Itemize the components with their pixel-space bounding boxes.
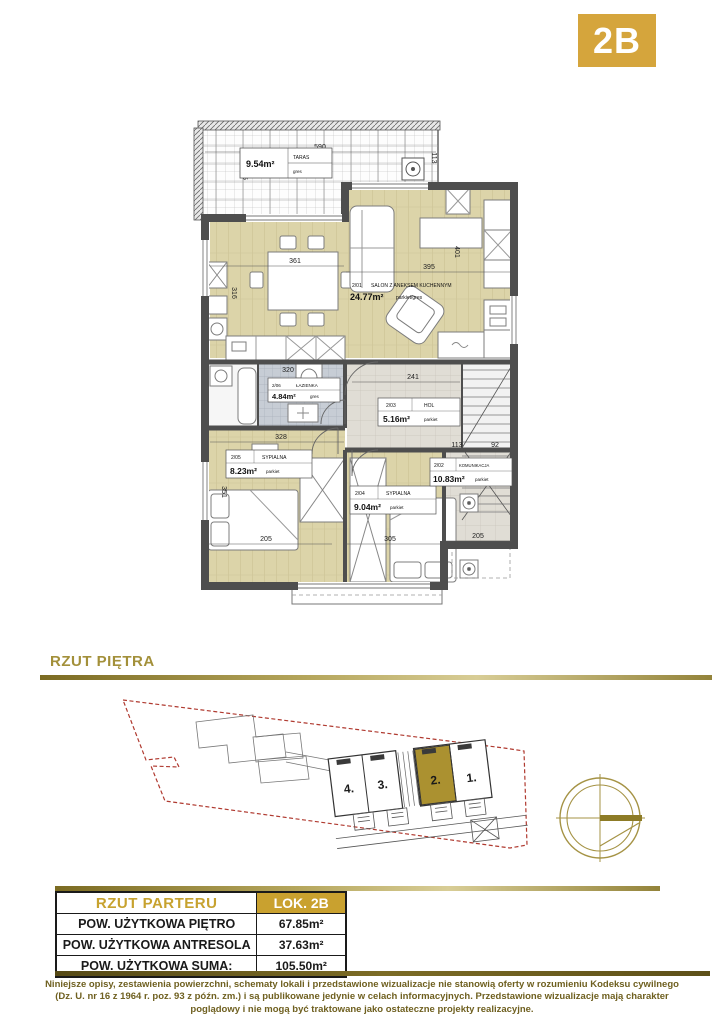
unit-label-1: 1. xyxy=(466,770,478,785)
gold-divider xyxy=(40,675,712,680)
dim-salon-depth: 401 xyxy=(453,246,460,258)
svg-text:2/06: 2/06 xyxy=(272,383,281,388)
svg-text:5.16m²: 5.16m² xyxy=(383,414,410,424)
svg-text:SALON Z ANEKSEM KUCHENNYM: SALON Z ANEKSEM KUCHENNYM xyxy=(371,283,452,289)
dim-komunikacja-w2: 92 xyxy=(491,442,499,449)
table-header-row: RZUT PARTERU LOK. 2B xyxy=(56,892,346,914)
dim-bedroom5-depth: 351 xyxy=(220,486,227,498)
room-label-lazienka: 2/06 ŁAZIENKA 4.84m² gres xyxy=(268,378,340,402)
table-header-title: RZUT PARTERU xyxy=(56,892,257,914)
roof-hatch-top xyxy=(198,121,440,130)
floor-plan: 590 113 205 361 316 395 401 320 241 328 … xyxy=(186,114,530,646)
svg-text:parkiet: parkiet xyxy=(424,417,438,422)
table-row: POW. UŻYTKOWA ANTRESOLA 37.63m² xyxy=(56,935,346,956)
svg-text:gres: gres xyxy=(310,394,320,399)
dim-bedroom5-width: 328 xyxy=(275,434,287,441)
tv-bench xyxy=(438,332,486,358)
unit-label-4: 4. xyxy=(343,781,355,796)
room-label-sypialnia-205: 2/05 SYPIALNA 8.23m² parkiet xyxy=(226,450,312,478)
dim-kitchen-width: 361 xyxy=(289,258,301,265)
svg-text:ŁAZIENKA: ŁAZIENKA xyxy=(296,383,318,388)
room-label-taras: 9.54m² TARAS gres xyxy=(240,148,332,178)
svg-text:KOMUNIKACJA: KOMUNIKACJA xyxy=(459,463,489,468)
svg-text:9.54m²: 9.54m² xyxy=(246,159,275,169)
svg-text:parkiet: parkiet xyxy=(475,477,489,482)
roof-hatch-left xyxy=(194,128,203,220)
svg-text:HOL: HOL xyxy=(424,403,435,409)
svg-text:8.23m²: 8.23m² xyxy=(230,466,257,476)
room-label-sypialnia-204: 2/04 SYPIALNA 9.04m² parkiet xyxy=(350,486,436,514)
table-header-unit: LOK. 2B xyxy=(257,892,346,914)
svg-text:parkiet: parkiet xyxy=(390,505,404,510)
room-label-hol: 2/03 HOL 5.16m² parkiet xyxy=(378,398,460,426)
bathtub xyxy=(238,368,256,424)
row-value: 37.63m² xyxy=(257,935,346,956)
dim-bedroom4-width: 305 xyxy=(384,536,396,543)
room-label-komunikacja: 2/02 KOMUNIKACJA 10.83m² parkiet xyxy=(430,458,512,486)
svg-text:4.84m²: 4.84m² xyxy=(272,392,296,401)
svg-text:9.04m²: 9.04m² xyxy=(354,502,381,512)
svg-text:TARAS: TARAS xyxy=(293,155,310,161)
dim-bath-width: 320 xyxy=(282,367,294,374)
dim-bedroom5-bottom: 205 xyxy=(260,536,272,543)
dining-table xyxy=(268,252,338,310)
svg-text:2/05: 2/05 xyxy=(231,455,241,461)
dim-terrace-side: 113 xyxy=(430,152,437,163)
row-label: POW. UŻYTKOWA PIĘTRO xyxy=(56,914,257,935)
svg-text:parkiet/gres: parkiet/gres xyxy=(396,295,423,301)
svg-text:parkiet: parkiet xyxy=(266,469,280,474)
area-table: RZUT PARTERU LOK. 2B POW. UŻYTKOWA PIĘTR… xyxy=(55,891,347,978)
section-title: RZUT PIĘTRA xyxy=(50,653,155,670)
table-row: POW. UŻYTKOWA PIĘTRO 67.85m² xyxy=(56,914,346,935)
svg-text:24.77m²: 24.77m² xyxy=(350,292,384,302)
svg-text:2/04: 2/04 xyxy=(355,491,365,497)
dim-komunikacja-w1: 113 xyxy=(451,442,462,449)
unit-badge: 2B xyxy=(578,14,656,67)
svg-text:SYPIALNA: SYPIALNA xyxy=(386,491,411,497)
dim-komunikacja-bottom: 205 xyxy=(472,533,484,540)
row-value: 67.85m² xyxy=(257,914,346,935)
coffee-table xyxy=(420,218,482,248)
unit-row: 4. 3. 2. 1. xyxy=(326,736,529,859)
sofa xyxy=(350,206,394,292)
svg-text:2/03: 2/03 xyxy=(386,403,396,409)
svg-text:2/01: 2/01 xyxy=(352,283,362,289)
svg-text:10.83m²: 10.83m² xyxy=(433,474,465,484)
dim-salon-width: 395 xyxy=(423,264,435,271)
svg-text:2/02: 2/02 xyxy=(434,463,444,469)
footer-disclaimer: Niniejsze opisy, zestawienia powierzchni… xyxy=(37,979,687,1016)
unit-label-3: 3. xyxy=(377,777,389,792)
row-label: POW. UŻYTKOWA ANTRESOLA xyxy=(56,935,257,956)
footer-divider xyxy=(55,971,710,976)
site-plan: 4. 3. 2. 1. xyxy=(96,688,664,880)
compass-rose-icon xyxy=(556,774,645,862)
svg-text:SYPIALNA: SYPIALNA xyxy=(262,455,287,461)
dim-hol-width: 241 xyxy=(407,374,419,381)
svg-text:gres: gres xyxy=(293,169,303,174)
unit-label-2: 2. xyxy=(430,773,442,788)
dim-kitchen-depth: 316 xyxy=(230,287,237,299)
